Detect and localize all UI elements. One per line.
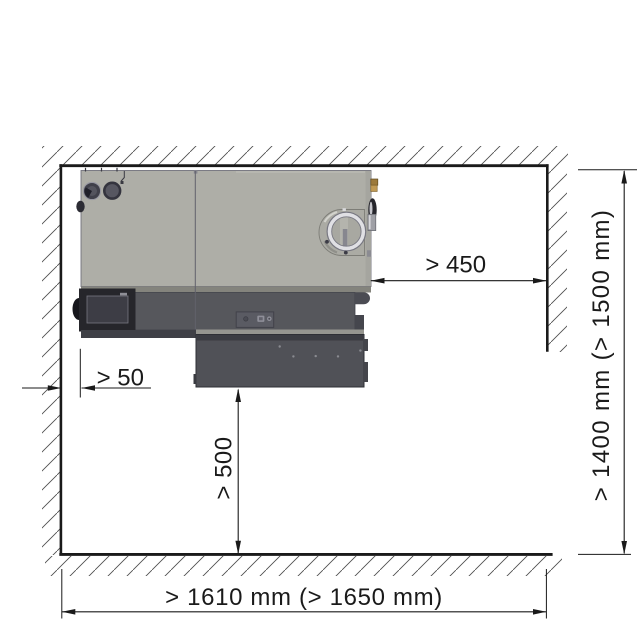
svg-text:> 500: > 500	[211, 436, 238, 499]
svg-text:> 1610 mm (> 1650 mm): > 1610 mm (> 1650 mm)	[165, 584, 443, 611]
svg-text:> 1400 mm (> 1500 mm): > 1400 mm (> 1500 mm)	[588, 209, 615, 501]
svg-text:> 450: > 450	[425, 252, 486, 279]
svg-text:> 50: > 50	[97, 365, 144, 392]
